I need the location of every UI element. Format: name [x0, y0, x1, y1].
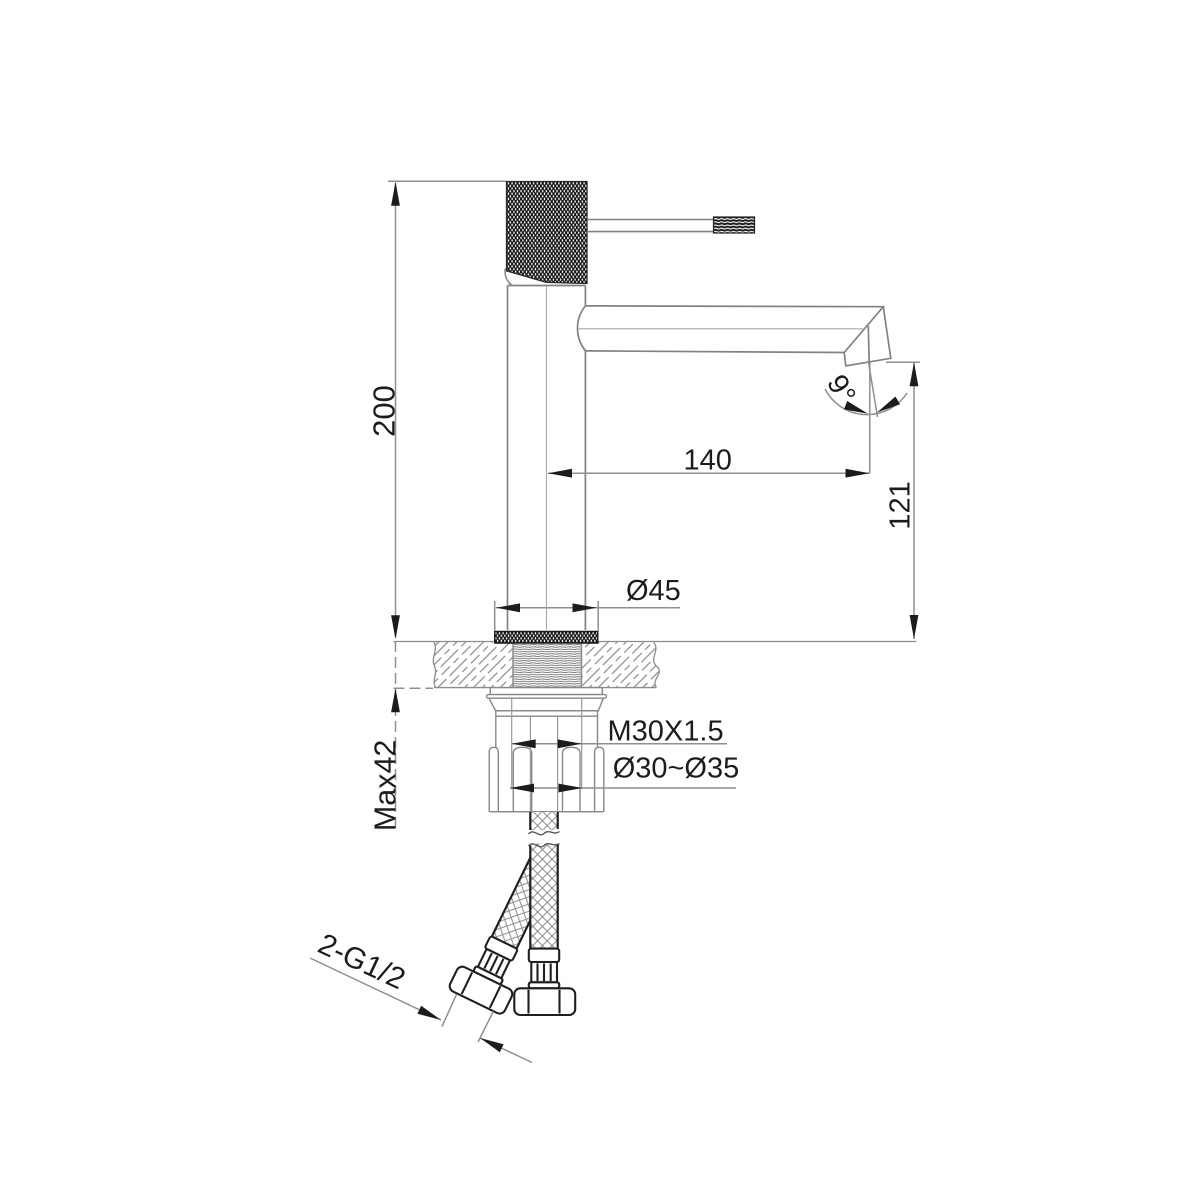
svg-text:M30X1.5: M30X1.5 — [608, 716, 724, 748]
svg-text:200: 200 — [367, 385, 402, 437]
svg-text:Ø30~Ø35: Ø30~Ø35 — [613, 753, 740, 785]
svg-text:121: 121 — [885, 481, 917, 529]
svg-text:Max42: Max42 — [369, 740, 403, 832]
svg-text:140: 140 — [684, 445, 732, 477]
svg-text:Ø45: Ø45 — [626, 575, 681, 607]
